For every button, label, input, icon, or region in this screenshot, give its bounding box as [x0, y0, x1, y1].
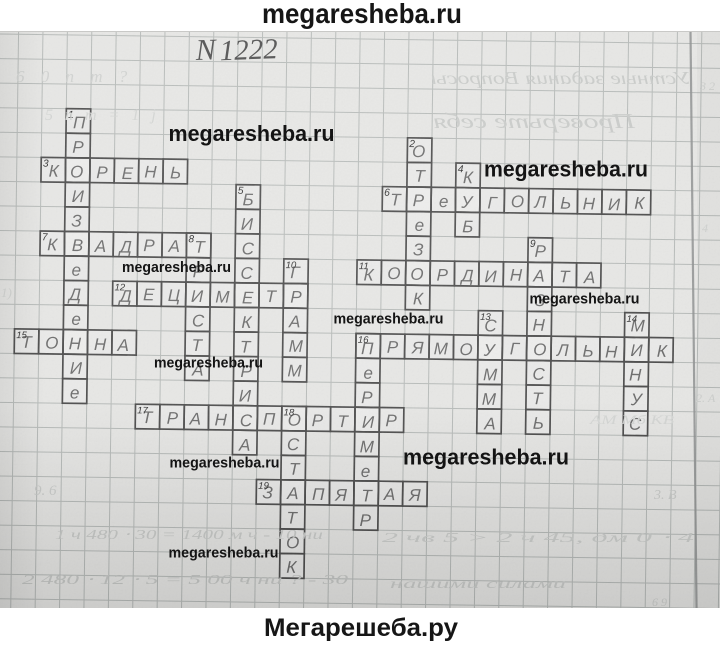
svg-text:megaresheba.ru: megaresheba.ru — [530, 291, 640, 308]
svg-text:megaresheba.ru: megaresheba.ru — [484, 157, 648, 182]
svg-text:megaresheba.ru: megaresheba.ru — [403, 445, 569, 470]
svg-text:megaresheba.ru: megaresheba.ru — [170, 455, 280, 472]
svg-text:megaresheba.ru: megaresheba.ru — [169, 121, 335, 146]
svg-text:Мегарешеба.ру: Мегарешеба.ру — [264, 614, 458, 642]
svg-text:megaresheba.ru: megaresheba.ru — [122, 259, 231, 276]
svg-text:megaresheba.ru: megaresheba.ru — [334, 311, 444, 328]
svg-text:megaresheba.ru: megaresheba.ru — [262, 0, 462, 29]
svg-text:megaresheba.ru: megaresheba.ru — [169, 545, 279, 562]
svg-text:megaresheba.ru: megaresheba.ru — [154, 355, 263, 372]
